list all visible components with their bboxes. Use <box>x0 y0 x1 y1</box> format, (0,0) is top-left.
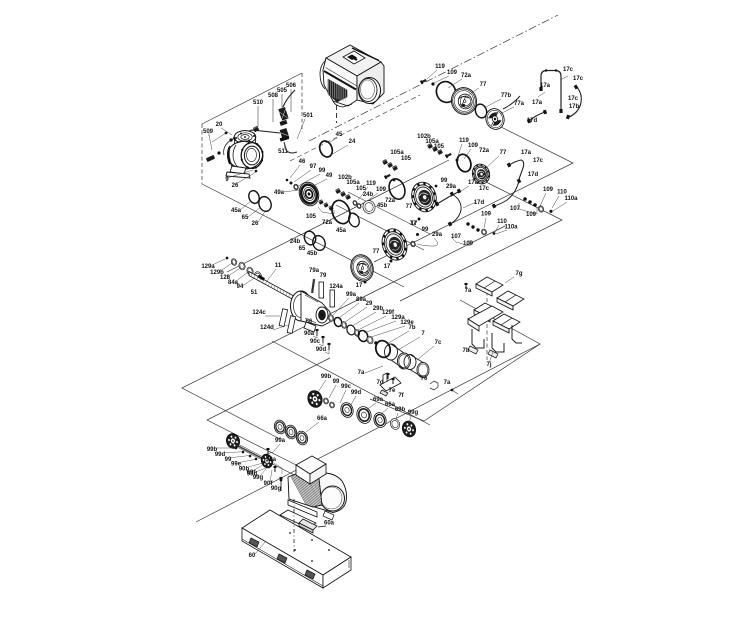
svg-text:107: 107 <box>451 234 462 240</box>
svg-text:69b: 69b <box>395 407 406 413</box>
svg-text:90g: 90g <box>271 486 282 492</box>
svg-text:508: 508 <box>268 93 279 99</box>
svg-text:109: 109 <box>543 187 554 193</box>
svg-text:109: 109 <box>468 143 479 149</box>
svg-text:109: 109 <box>526 212 537 218</box>
svg-text:7d: 7d <box>376 380 383 386</box>
svg-text:17: 17 <box>356 283 363 289</box>
svg-text:72a: 72a <box>479 148 490 154</box>
svg-text:51: 51 <box>251 290 258 296</box>
svg-text:505: 505 <box>277 88 288 94</box>
svg-text:99: 99 <box>333 379 340 385</box>
svg-text:79a: 79a <box>309 268 320 274</box>
svg-text:105: 105 <box>434 144 445 150</box>
svg-text:65: 65 <box>242 215 249 221</box>
svg-text:24: 24 <box>349 139 356 145</box>
svg-text:99g: 99g <box>408 410 419 416</box>
svg-text:17c: 17c <box>563 67 574 73</box>
svg-text:29a: 29a <box>432 232 443 238</box>
svg-text:45a: 45a <box>231 208 242 214</box>
svg-text:77: 77 <box>500 150 507 156</box>
svg-text:45a: 45a <box>336 228 347 234</box>
svg-text:90d: 90d <box>316 347 327 353</box>
svg-text:79: 79 <box>320 273 327 279</box>
svg-text:77: 77 <box>480 82 487 88</box>
svg-text:17a: 17a <box>521 150 532 156</box>
svg-text:99: 99 <box>422 227 429 233</box>
svg-text:17c: 17c <box>533 158 544 164</box>
svg-text:99d: 99d <box>351 390 362 396</box>
svg-text:77a: 77a <box>514 101 525 107</box>
svg-text:29a: 29a <box>446 184 457 190</box>
svg-text:124d: 124d <box>260 325 274 331</box>
svg-text:110a: 110a <box>504 225 518 231</box>
svg-text:77: 77 <box>373 249 380 255</box>
svg-text:46: 46 <box>299 159 306 165</box>
svg-text:17: 17 <box>411 221 418 227</box>
svg-text:119: 119 <box>435 64 445 70</box>
svg-text:72a: 72a <box>461 73 472 79</box>
svg-text:7c: 7c <box>435 340 442 346</box>
svg-text:7a: 7a <box>465 288 472 294</box>
svg-text:77: 77 <box>406 204 413 210</box>
svg-text:7e: 7e <box>389 388 396 394</box>
svg-text:110a: 110a <box>564 196 578 202</box>
svg-text:109: 109 <box>376 187 387 193</box>
svg-text:90a: 90a <box>266 457 277 463</box>
svg-text:109: 109 <box>463 241 474 247</box>
svg-text:45: 45 <box>336 132 343 138</box>
svg-text:76: 76 <box>421 376 428 382</box>
svg-text:17c: 17c <box>479 186 490 192</box>
svg-text:20: 20 <box>216 122 223 128</box>
svg-text:49a: 49a <box>274 190 285 196</box>
svg-text:17b: 17b <box>569 104 580 110</box>
svg-text:17c: 17c <box>568 96 579 102</box>
svg-text:7b: 7b <box>462 348 469 354</box>
svg-text:99b: 99b <box>321 374 332 380</box>
svg-text:69a: 69a <box>373 397 384 403</box>
svg-text:510: 510 <box>253 100 264 106</box>
svg-text:11: 11 <box>275 263 282 269</box>
svg-text:7g: 7g <box>515 271 522 277</box>
svg-text:17: 17 <box>384 264 391 270</box>
svg-text:24b: 24b <box>363 192 374 198</box>
svg-text:72a: 72a <box>322 220 333 226</box>
svg-text:7a: 7a <box>358 370 365 376</box>
svg-text:65: 65 <box>299 246 306 252</box>
svg-text:17d: 17d <box>528 172 539 178</box>
svg-text:109: 109 <box>481 212 492 218</box>
svg-text:124a: 124a <box>329 284 343 290</box>
svg-text:97: 97 <box>310 164 317 170</box>
svg-text:7a: 7a <box>444 380 451 386</box>
svg-text:7b: 7b <box>408 325 415 331</box>
svg-text:60a: 60a <box>324 521 335 527</box>
svg-text:72a: 72a <box>385 198 396 204</box>
svg-text:99a: 99a <box>275 438 286 444</box>
svg-text:105: 105 <box>401 156 412 162</box>
svg-text:501: 501 <box>303 113 314 119</box>
svg-text:124c: 124c <box>252 310 266 316</box>
svg-text:119: 119 <box>366 181 376 187</box>
svg-text:110: 110 <box>557 190 567 196</box>
svg-text:511: 511 <box>278 149 288 155</box>
svg-text:17a: 17a <box>532 100 543 106</box>
svg-text:109: 109 <box>447 70 458 76</box>
svg-text:77b: 77b <box>501 93 512 99</box>
svg-text:17c: 17c <box>573 76 584 82</box>
svg-text:99g: 99g <box>253 475 264 481</box>
svg-text:66: 66 <box>306 319 313 325</box>
svg-text:66a: 66a <box>317 416 328 422</box>
svg-text:17d: 17d <box>474 200 485 206</box>
svg-text:17d: 17d <box>527 118 538 124</box>
svg-text:49: 49 <box>326 173 333 179</box>
svg-text:509: 509 <box>203 129 214 135</box>
svg-text:17a: 17a <box>540 83 551 89</box>
svg-text:506: 506 <box>286 83 297 89</box>
svg-text:24b: 24b <box>290 239 301 245</box>
svg-text:105: 105 <box>306 214 317 220</box>
svg-text:94: 94 <box>237 284 244 290</box>
svg-text:45b: 45b <box>307 251 318 257</box>
svg-text:26: 26 <box>232 183 239 189</box>
